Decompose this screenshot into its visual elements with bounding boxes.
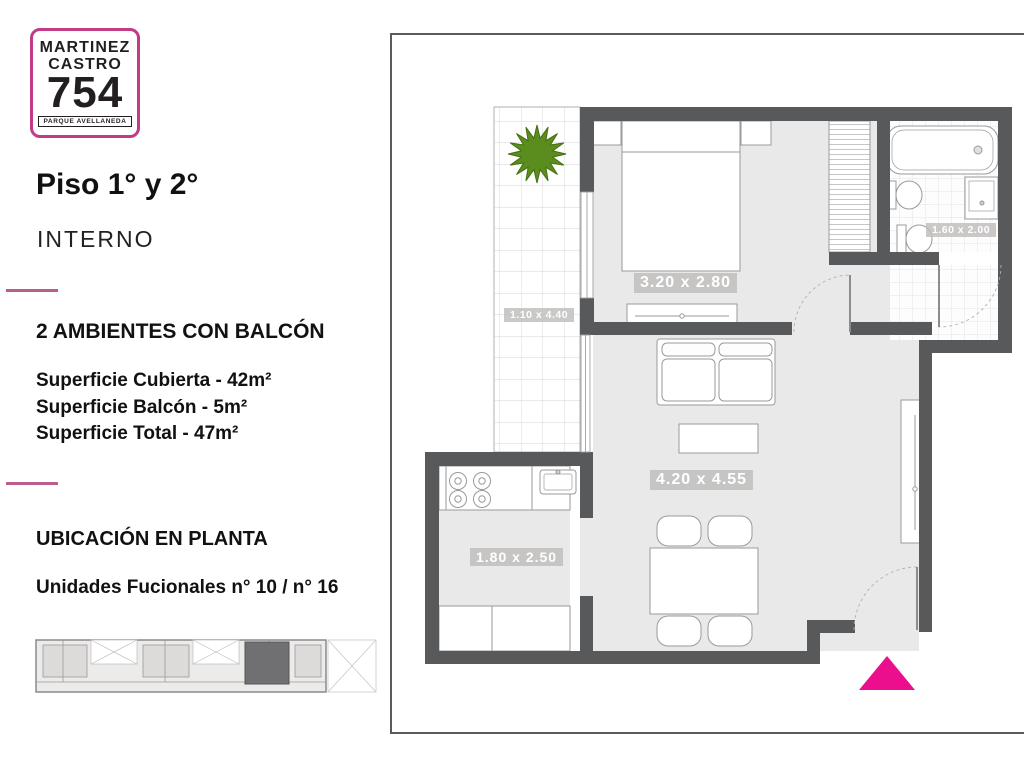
coffee-table: [679, 424, 758, 453]
functional-units: Unidades Fucionales n° 10 / n° 16: [36, 577, 338, 599]
balcony: [494, 107, 580, 452]
surface-balcony: Superficie Balcón - 5m²: [36, 395, 271, 422]
dining-chair: [708, 616, 752, 646]
brand-tagline: PARQUE AVELLANEDA: [38, 116, 131, 127]
floor-title: Piso 1° y 2°: [36, 168, 198, 202]
dim-bathroom: 1.60 x 2.00: [926, 223, 996, 237]
dining-table: [650, 548, 758, 614]
dim-balcony: 1.10 x 4.40: [504, 308, 574, 322]
brand-number: 754: [47, 73, 123, 113]
pink-divider-bottom: [6, 482, 58, 485]
brand-logo: MARTINEZ CASTRO 754 PARQUE AVELLANEDA: [30, 28, 140, 138]
dim-living: 4.20 x 4.55: [650, 470, 753, 490]
brand-line1: MARTINEZ: [40, 39, 131, 56]
wardrobe: [829, 121, 870, 252]
flyer: MARTINEZ CASTRO 754 PARQUE AVELLANEDA Pi…: [0, 0, 1024, 768]
highlighted-unit: [245, 642, 289, 684]
entrance-arrow: [859, 656, 915, 690]
nightstand-left: [593, 121, 621, 145]
pink-divider-top: [6, 289, 58, 292]
dining-chair: [657, 616, 701, 646]
floor-plan-drawing: [392, 35, 1024, 732]
bidet: [897, 225, 906, 253]
surface-areas: Superficie Cubierta - 42m² Superficie Ba…: [36, 368, 271, 448]
dining-chair: [708, 516, 752, 546]
category-subtitle: INTERNO: [37, 226, 155, 253]
kitchen-counter-bottom: [439, 606, 570, 651]
surface-covered: Superficie Cubierta - 42m²: [36, 368, 271, 395]
nightstand-right: [741, 121, 771, 145]
bed: [622, 121, 740, 271]
dim-bedroom: 3.20 x 2.80: [634, 273, 737, 293]
plant-icon: [508, 125, 566, 183]
side-x-box: [328, 640, 376, 692]
listing-type: 2 AMBIENTES CON BALCÓN: [36, 320, 325, 344]
surface-total: Superficie Total - 47m²: [36, 421, 271, 448]
floor-plan: 1.10 x 4.40 3.20 x 2.80 1.60 x 2.00 4.20…: [390, 33, 1024, 734]
location-heading: UBICACIÓN EN PLANTA: [36, 528, 268, 551]
dim-kitchen: 1.80 x 2.50: [470, 548, 563, 566]
vanity-sink: [965, 177, 998, 219]
building-key-plan: [33, 637, 383, 715]
dining-chair: [657, 516, 701, 546]
